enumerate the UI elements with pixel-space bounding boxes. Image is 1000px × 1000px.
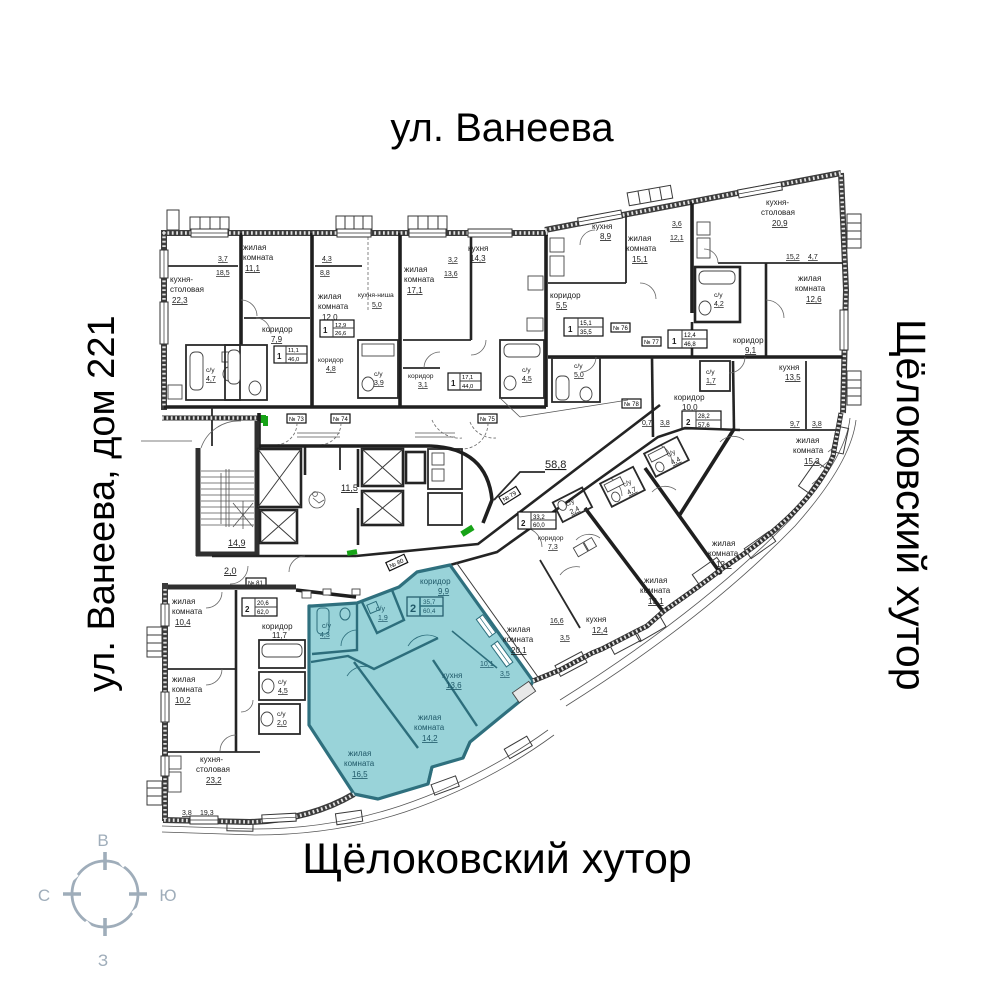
svg-text:4,7: 4,7 (206, 376, 216, 383)
svg-text:жилая: жилая (404, 265, 427, 274)
svg-text:14,9: 14,9 (228, 538, 246, 548)
svg-text:с/у: с/у (574, 363, 583, 370)
svg-text:жилая: жилая (712, 539, 735, 548)
svg-text:комната: комната (318, 302, 349, 311)
svg-text:жилая: жилая (796, 436, 819, 445)
svg-text:коридор: коридор (733, 336, 764, 345)
svg-text:с/у: с/у (706, 369, 715, 376)
svg-text:№ 74: № 74 (333, 416, 348, 423)
svg-text:13,6: 13,6 (446, 681, 462, 690)
svg-text:№ 75: № 75 (480, 416, 495, 423)
svg-text:9,9: 9,9 (438, 587, 450, 596)
svg-text:23,2: 23,2 (206, 776, 222, 785)
svg-text:12,4: 12,4 (592, 626, 608, 635)
svg-text:с/у: с/у (714, 292, 723, 299)
svg-text:46,8: 46,8 (684, 342, 696, 348)
svg-text:10,2: 10,2 (175, 696, 191, 705)
svg-text:15,3: 15,3 (804, 457, 820, 466)
svg-text:4,3: 4,3 (320, 632, 330, 639)
svg-text:жилая: жилая (628, 234, 651, 243)
svg-text:Ю: Ю (159, 886, 176, 905)
svg-text:коридор: коридор (550, 291, 581, 300)
svg-text:комната: комната (414, 723, 445, 732)
svg-text:с/у: с/у (374, 371, 383, 378)
svg-text:жилая: жилая (418, 713, 441, 722)
svg-text:17,1: 17,1 (462, 375, 473, 381)
svg-text:кухня-: кухня- (170, 275, 193, 284)
svg-text:3,7: 3,7 (218, 256, 228, 263)
svg-text:58,8: 58,8 (545, 459, 566, 471)
svg-text:4,5: 4,5 (278, 688, 288, 695)
svg-text:кухня: кухня (779, 363, 799, 372)
svg-text:11,1: 11,1 (245, 264, 261, 273)
svg-text:12,1: 12,1 (670, 235, 684, 242)
svg-text:3,8: 3,8 (660, 420, 670, 427)
svg-text:ул. Ванеева, дом 221: ул. Ванеева, дом 221 (81, 315, 123, 692)
svg-text:5,0: 5,0 (372, 302, 382, 309)
svg-text:с/у: с/у (277, 711, 286, 718)
svg-text:кухня-: кухня- (200, 755, 223, 764)
svg-text:жилая: жилая (243, 243, 266, 252)
svg-text:1,9: 1,9 (378, 615, 388, 622)
svg-text:2,0: 2,0 (224, 566, 237, 576)
svg-text:2,0: 2,0 (277, 720, 287, 727)
svg-text:2: 2 (686, 418, 691, 427)
svg-text:столовая: столовая (170, 285, 204, 294)
svg-text:кухня: кухня (586, 615, 606, 624)
svg-text:11,1: 11,1 (288, 348, 299, 354)
svg-text:Щёлоковский хутор: Щёлоковский хутор (302, 835, 692, 883)
svg-text:9,1: 9,1 (745, 346, 757, 355)
svg-text:3,5: 3,5 (500, 671, 510, 678)
svg-text:жилая: жилая (798, 274, 821, 283)
svg-text:13,1: 13,1 (648, 597, 664, 606)
svg-text:46,0: 46,0 (288, 357, 299, 363)
svg-text:9,7: 9,7 (790, 421, 800, 428)
svg-text:1: 1 (451, 379, 456, 388)
svg-text:жилая: жилая (318, 292, 341, 301)
svg-text:3,5: 3,5 (560, 635, 570, 642)
svg-text:14,3: 14,3 (470, 254, 486, 263)
svg-text:№ 76: № 76 (613, 325, 628, 332)
svg-text:Щёлоковский хутор: Щёлоковский хутор (888, 319, 934, 691)
svg-text:7,9: 7,9 (271, 335, 283, 344)
svg-text:С: С (38, 886, 50, 905)
svg-text:комната: комната (404, 275, 435, 284)
svg-text:17,1: 17,1 (407, 286, 423, 295)
svg-text:1: 1 (277, 352, 282, 361)
svg-text:15,1: 15,1 (632, 255, 648, 264)
svg-text:4,2: 4,2 (714, 301, 724, 308)
svg-text:№ 73: № 73 (289, 416, 304, 423)
svg-text:комната: комната (708, 549, 739, 558)
svg-text:4,7: 4,7 (808, 254, 818, 261)
svg-text:8,9: 8,9 (600, 232, 612, 241)
svg-text:с/у: с/у (278, 679, 287, 686)
svg-text:с/у: с/у (522, 367, 531, 374)
svg-text:коридор: коридор (408, 373, 434, 380)
svg-text:жилая: жилая (172, 597, 195, 606)
svg-text:13,5: 13,5 (785, 373, 801, 382)
svg-text:4,8: 4,8 (326, 366, 336, 373)
svg-text:3,6: 3,6 (672, 221, 682, 228)
svg-text:11,7: 11,7 (272, 631, 288, 640)
svg-text:жилая: жилая (507, 625, 530, 634)
svg-text:4,3: 4,3 (322, 256, 332, 263)
svg-text:12,6: 12,6 (806, 295, 822, 304)
svg-text:28,2: 28,2 (698, 414, 710, 420)
svg-text:ул. Ванеева: ул. Ванеева (390, 106, 614, 150)
svg-text:коридор: коридор (538, 535, 564, 542)
svg-text:2: 2 (410, 603, 416, 615)
svg-text:18,5: 18,5 (216, 270, 230, 277)
svg-text:4,5: 4,5 (522, 376, 532, 383)
svg-text:с/у: с/у (376, 606, 385, 613)
svg-text:комната: комната (626, 244, 657, 253)
svg-text:5,0: 5,0 (574, 372, 584, 379)
svg-text:20,6: 20,6 (257, 601, 269, 607)
svg-text:1: 1 (323, 326, 328, 335)
svg-text:№ 77: № 77 (644, 339, 659, 346)
svg-text:12,4: 12,4 (684, 333, 696, 339)
svg-text:1,7: 1,7 (706, 378, 716, 385)
svg-text:8,8: 8,8 (320, 270, 330, 277)
svg-text:3,9: 3,9 (374, 380, 384, 387)
svg-text:16,6: 16,6 (550, 618, 564, 625)
svg-text:10,1: 10,1 (480, 661, 494, 668)
svg-text:жилая: жилая (348, 749, 371, 758)
svg-text:22,3: 22,3 (172, 296, 188, 305)
svg-text:с/у: с/у (322, 623, 331, 630)
svg-text:13,6: 13,6 (444, 271, 458, 278)
svg-text:коридор: коридор (420, 577, 451, 586)
svg-text:26,6: 26,6 (335, 331, 346, 337)
svg-text:коридор: коридор (318, 357, 344, 364)
svg-text:комната: комната (344, 759, 375, 768)
svg-text:20,9: 20,9 (772, 219, 788, 228)
svg-text:44,0: 44,0 (462, 384, 473, 390)
svg-text:комната: комната (172, 607, 203, 616)
svg-text:комната: комната (640, 586, 671, 595)
svg-text:14,2: 14,2 (422, 734, 438, 743)
svg-text:В: В (97, 831, 108, 850)
svg-text:2: 2 (245, 605, 250, 614)
svg-text:комната: комната (172, 685, 203, 694)
svg-text:11,5: 11,5 (341, 483, 358, 493)
svg-text:10,4: 10,4 (175, 618, 191, 627)
svg-text:коридор: коридор (262, 622, 293, 631)
svg-text:1: 1 (568, 325, 573, 334)
svg-text:кухня-: кухня- (766, 198, 789, 207)
svg-text:35,5: 35,5 (580, 330, 592, 336)
svg-text:с/у: с/у (206, 367, 215, 374)
svg-text:жилая: жилая (644, 576, 667, 585)
svg-text:3,1: 3,1 (418, 382, 428, 389)
svg-text:№ 78: № 78 (624, 401, 639, 408)
svg-text:0,7: 0,7 (642, 420, 652, 427)
svg-text:жилая: жилая (172, 675, 195, 684)
svg-text:1: 1 (672, 337, 677, 346)
svg-text:коридор: коридор (262, 325, 293, 334)
svg-text:столовая: столовая (196, 765, 230, 774)
svg-text:3,8: 3,8 (812, 421, 822, 428)
svg-text:3,2: 3,2 (448, 257, 458, 264)
svg-text:кухня: кухня (468, 244, 488, 253)
svg-text:5,5: 5,5 (556, 301, 568, 310)
svg-text:коридор: коридор (674, 393, 705, 402)
svg-text:комната: комната (793, 446, 824, 455)
svg-text:кухня-ниша: кухня-ниша (358, 292, 394, 299)
svg-text:комната: комната (503, 635, 534, 644)
svg-text:35,7: 35,7 (423, 599, 436, 606)
svg-text:60,4: 60,4 (423, 608, 436, 615)
svg-text:комната: комната (795, 284, 826, 293)
svg-text:12,9: 12,9 (335, 323, 346, 329)
svg-text:столовая: столовая (761, 208, 795, 217)
svg-text:60,0: 60,0 (533, 523, 545, 529)
svg-text:кухня: кухня (442, 671, 462, 680)
svg-text:15,2: 15,2 (786, 254, 800, 261)
svg-text:15,1: 15,1 (580, 321, 592, 327)
svg-text:7,3: 7,3 (548, 544, 558, 551)
svg-text:20,1: 20,1 (511, 646, 527, 655)
svg-text:33,2: 33,2 (533, 515, 545, 521)
svg-text:З: З (98, 951, 108, 970)
svg-text:2: 2 (521, 519, 526, 528)
svg-text:62,0: 62,0 (257, 610, 269, 616)
svg-text:комната: комната (243, 253, 274, 262)
svg-text:16,5: 16,5 (352, 770, 368, 779)
